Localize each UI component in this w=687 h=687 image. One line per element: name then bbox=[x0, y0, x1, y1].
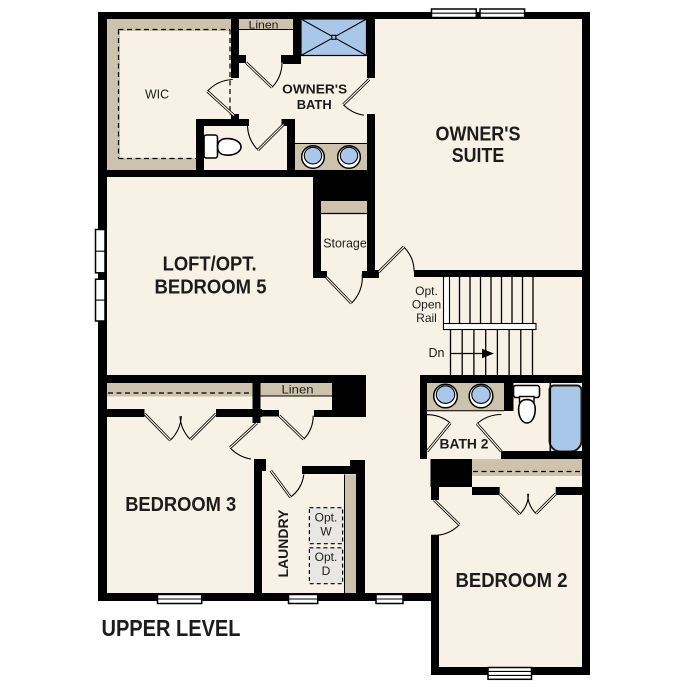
svg-text:BEDROOM 5: BEDROOM 5 bbox=[155, 276, 267, 298]
svg-text:Opt.: Opt. bbox=[315, 511, 338, 525]
svg-text:SUITE: SUITE bbox=[452, 145, 505, 167]
svg-text:BATH 2: BATH 2 bbox=[440, 437, 489, 452]
svg-text:UPPER LEVEL: UPPER LEVEL bbox=[102, 615, 241, 641]
svg-text:Linen: Linen bbox=[249, 20, 279, 32]
svg-text:BEDROOM 3: BEDROOM 3 bbox=[125, 494, 236, 516]
svg-text:BATH: BATH bbox=[297, 97, 332, 112]
svg-text:W: W bbox=[320, 525, 332, 539]
svg-text:Opt.: Opt. bbox=[315, 550, 338, 564]
svg-text:BEDROOM 2: BEDROOM 2 bbox=[456, 570, 568, 592]
svg-text:Open: Open bbox=[412, 298, 441, 312]
svg-text:Rail: Rail bbox=[416, 311, 437, 325]
svg-text:OWNER'S: OWNER'S bbox=[436, 123, 521, 145]
svg-text:LOFT/OPT.: LOFT/OPT. bbox=[163, 254, 257, 276]
svg-text:WIC: WIC bbox=[145, 87, 169, 101]
svg-text:Linen: Linen bbox=[282, 382, 314, 396]
svg-text:D: D bbox=[322, 564, 331, 578]
svg-text:OWNER'S: OWNER'S bbox=[282, 82, 347, 97]
svg-text:Storage: Storage bbox=[323, 236, 367, 250]
svg-text:LAUNDRY: LAUNDRY bbox=[275, 509, 291, 578]
svg-text:Dn: Dn bbox=[429, 346, 445, 360]
svg-text:Opt.: Opt. bbox=[415, 284, 438, 298]
